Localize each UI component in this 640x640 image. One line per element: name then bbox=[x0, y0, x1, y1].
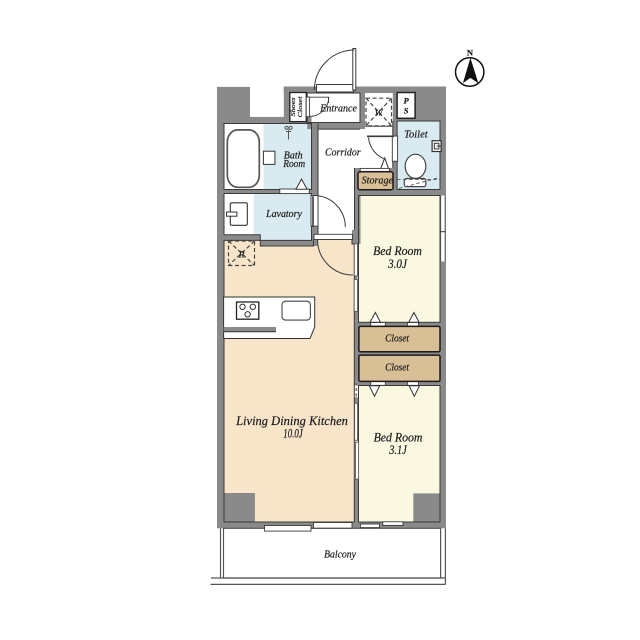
svg-text:Closet: Closet bbox=[385, 332, 410, 344]
svg-text:Storage: Storage bbox=[362, 175, 393, 187]
svg-text:S: S bbox=[404, 106, 409, 116]
svg-text:Corridor: Corridor bbox=[325, 147, 361, 159]
svg-text:Shoes: Shoes bbox=[290, 97, 297, 117]
svg-text:Balcony: Balcony bbox=[324, 549, 356, 561]
svg-text:Closet: Closet bbox=[297, 96, 304, 117]
svg-text:3.1J: 3.1J bbox=[388, 442, 407, 457]
svg-text:3.0J: 3.0J bbox=[387, 256, 408, 271]
svg-text:10.0J: 10.0J bbox=[283, 425, 303, 440]
svg-text:Room: Room bbox=[282, 158, 305, 170]
svg-text:W: W bbox=[375, 109, 384, 119]
svg-text:Lavatory: Lavatory bbox=[265, 208, 302, 220]
svg-text:Entrance: Entrance bbox=[319, 103, 357, 115]
svg-text:Toilet: Toilet bbox=[404, 129, 428, 141]
svg-text:Closet: Closet bbox=[385, 362, 410, 374]
svg-text:R: R bbox=[238, 251, 245, 261]
svg-text:N: N bbox=[467, 47, 474, 57]
svg-text:P: P bbox=[403, 96, 409, 106]
